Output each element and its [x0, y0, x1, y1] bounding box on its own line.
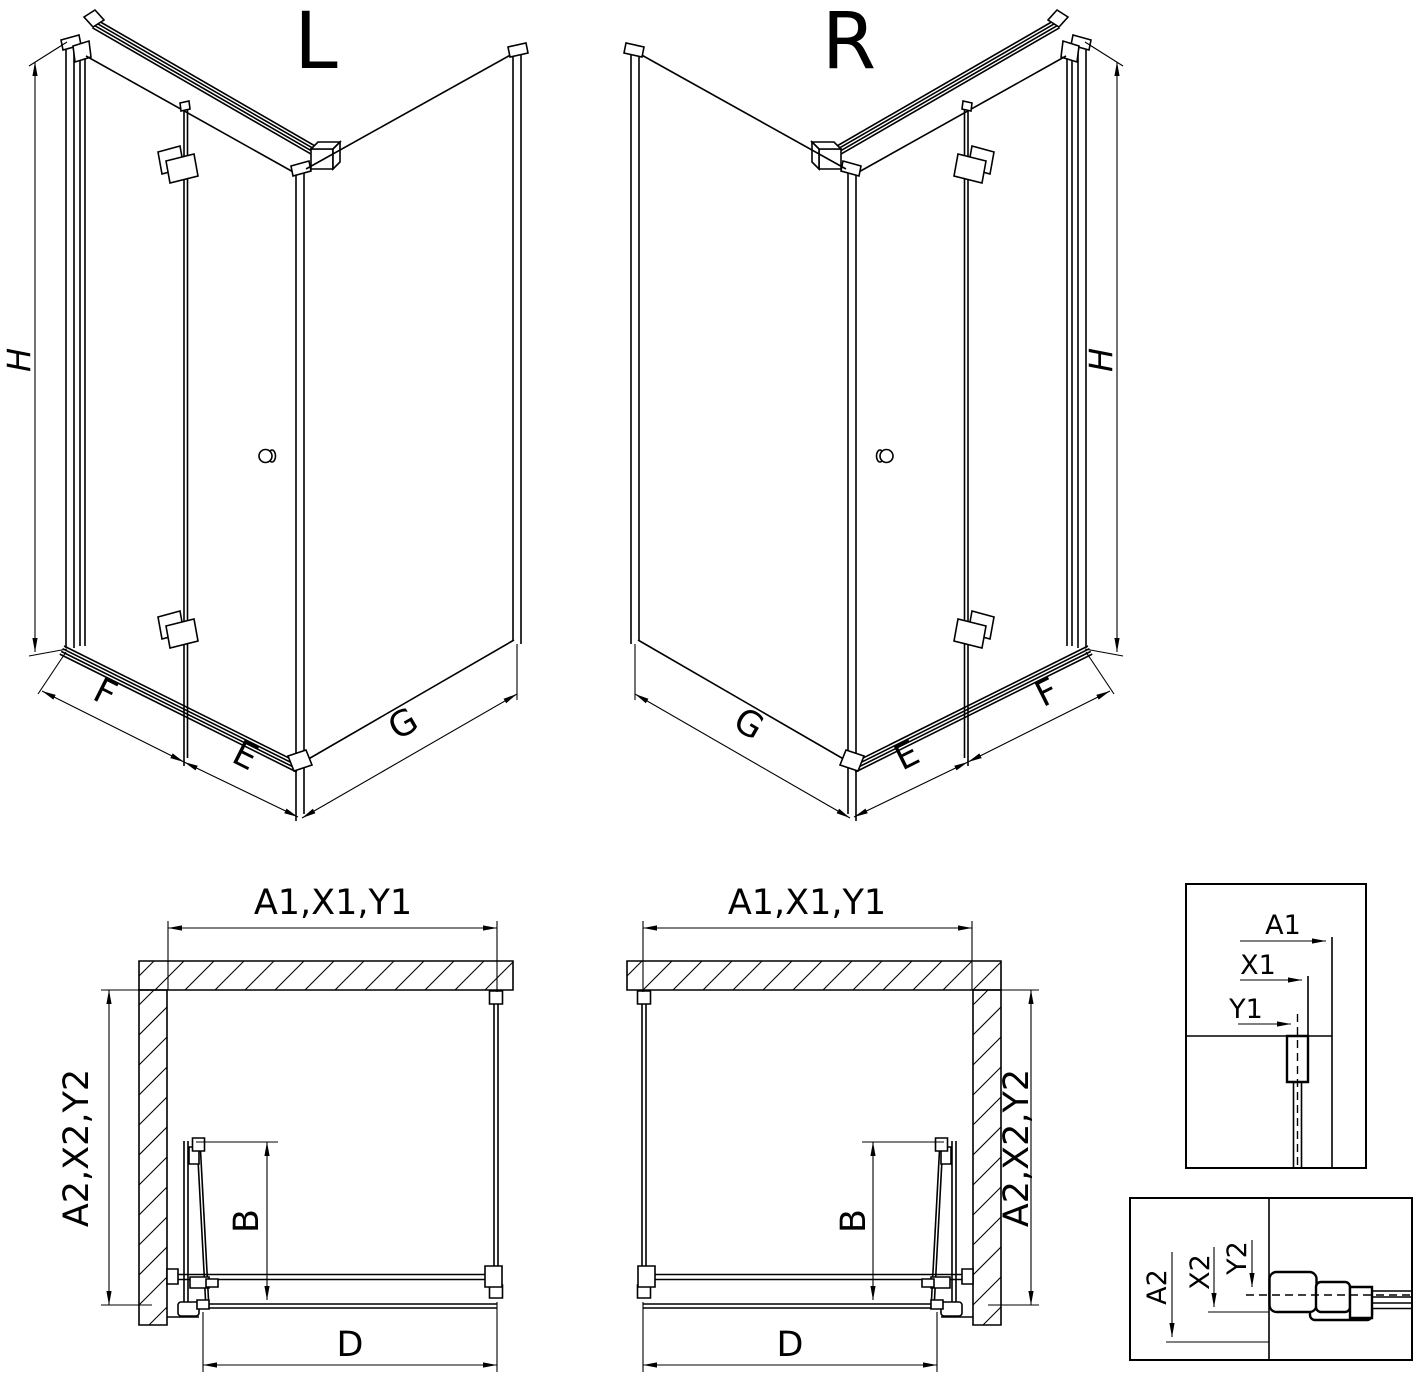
wall-side [139, 990, 167, 1325]
title-variant-right: R [822, 0, 876, 87]
label-entry-plan-left: D [337, 1325, 364, 1365]
label-width-plan-left: A1,X1,Y1 [254, 883, 412, 923]
label-depth-plan-left: A2,X2,Y2 [57, 1069, 97, 1227]
wall-top [139, 961, 513, 990]
detail-bottom-label-y2: Y2 [1222, 1241, 1253, 1276]
title-variant-left: L [294, 0, 338, 87]
label-side-left: G [382, 700, 425, 748]
detail-top-label-y1: Y1 [1228, 994, 1263, 1025]
label-front-left: F [87, 671, 123, 716]
detail-bottom-label-a2: A2 [1142, 1269, 1173, 1305]
plan-view-right-geometry [627, 921, 1039, 1372]
detail-bottom-label-x2: X2 [1185, 1254, 1216, 1290]
label-entry-plan-right: D [777, 1325, 804, 1365]
label-door-width-plan-right: B [834, 1209, 874, 1233]
label-width-plan-right: A1,X1,Y1 [728, 883, 886, 923]
label-side-right: G [727, 700, 770, 748]
label-height-right: H [1082, 348, 1120, 372]
wall-hatching [139, 961, 1001, 1325]
label-front-right: F [1029, 671, 1065, 716]
label-height-left: H [0, 348, 38, 372]
detail-top-label-a1: A1 [1265, 910, 1301, 941]
technical-drawing-page: L R H H F E G F E G A1,X1,Y1 A1,X1,Y1 A2… [0, 0, 1426, 1397]
detail-top-label-x1: X1 [1240, 950, 1276, 981]
label-door-width-plan-left: B [227, 1209, 267, 1233]
shower-enclosure-dimension-diagram: L R H H F E G F E G A1,X1,Y1 A1,X1,Y1 A2… [0, 0, 1426, 1397]
label-depth-plan-right: A2,X2,Y2 [997, 1069, 1037, 1227]
